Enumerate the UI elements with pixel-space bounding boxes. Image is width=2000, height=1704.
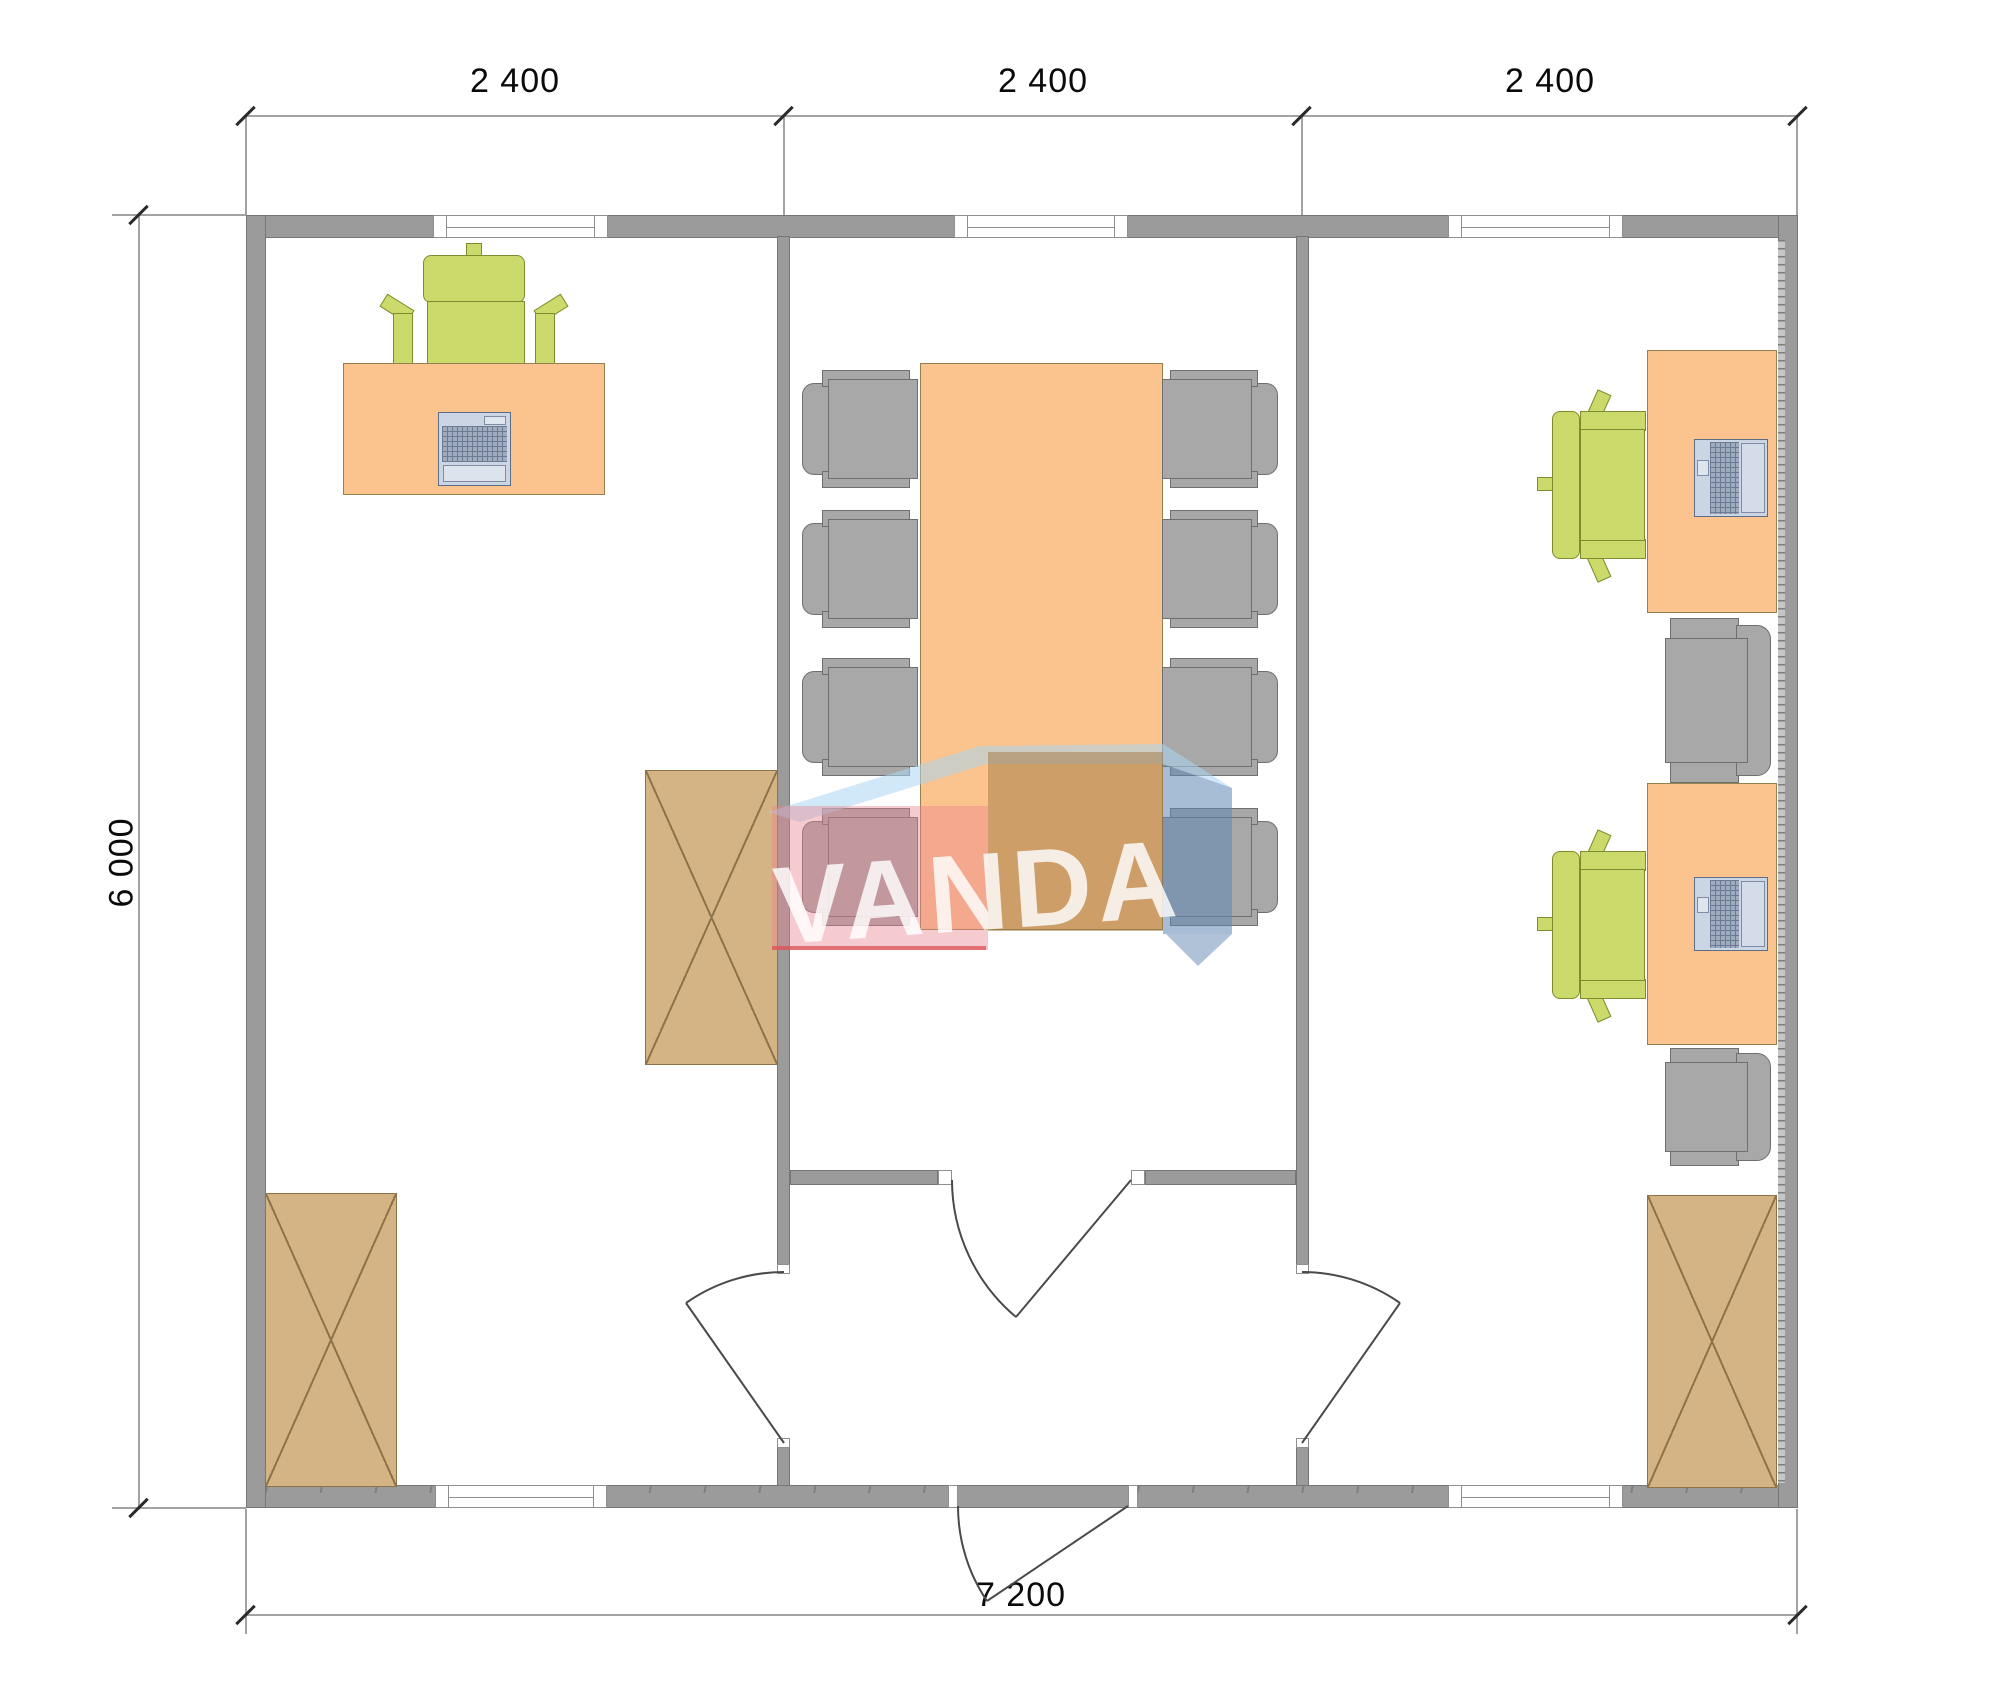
watermark-logo: VANDA [0, 0, 2000, 1704]
floor-plan: 2 400 2 400 2 400 6 000 7 200 [0, 0, 2000, 1704]
